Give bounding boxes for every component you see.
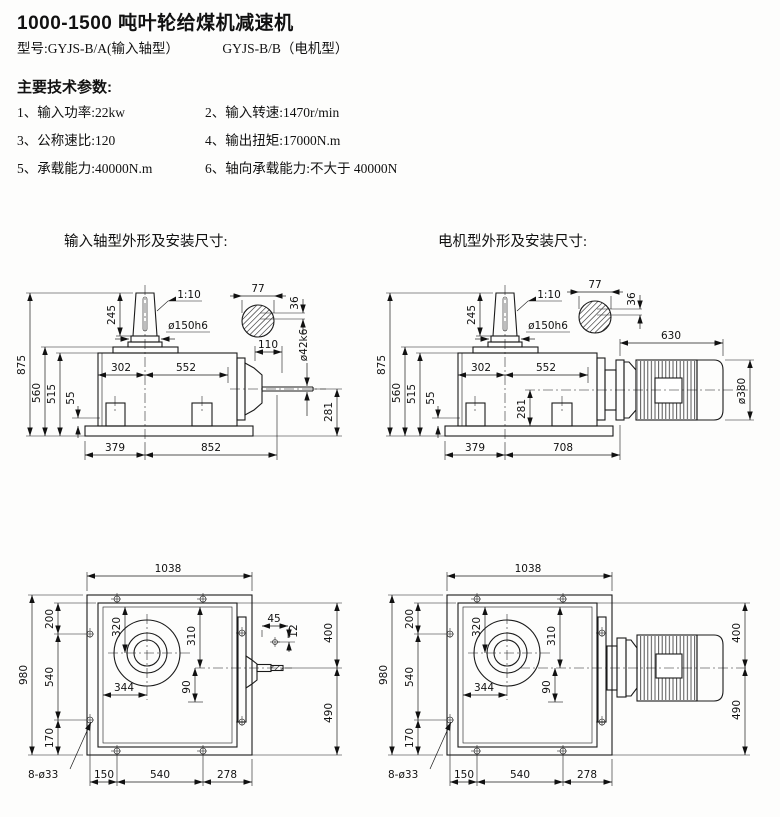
dim-1038: 1038 xyxy=(155,563,182,575)
dim-motor-dia: ø380 xyxy=(736,378,748,404)
dimensions: 1038 980 200 540 170 320 310 344 90 45 xyxy=(18,563,342,786)
dim-630: 630 xyxy=(661,330,681,342)
dim-200: 200 xyxy=(404,609,416,629)
dim-90: 90 xyxy=(541,680,553,693)
model-motor-type: GYJS-B/B（电机型） xyxy=(222,41,348,56)
dim-302: 302 xyxy=(471,362,491,374)
dim-36: 36 xyxy=(289,296,301,310)
dim-245: 245 xyxy=(466,305,478,325)
page-title: 1000-1500 吨叶轮给煤机减速机 xyxy=(17,8,294,35)
dim-344: 344 xyxy=(474,682,494,694)
dim-875: 875 xyxy=(376,355,388,375)
dim-302: 302 xyxy=(111,362,131,374)
dim-1038: 1038 xyxy=(515,563,542,575)
param-input-power: 1、输入功率:22kw xyxy=(17,101,205,121)
param-load-capacity: 5、承载能力:40000N.m xyxy=(17,157,205,177)
dim-281: 281 xyxy=(516,399,528,419)
motor-flange xyxy=(617,638,626,697)
dim-taper: 1:10 xyxy=(177,289,201,301)
dim-310: 310 xyxy=(186,626,198,646)
dim-490: 490 xyxy=(731,700,743,720)
foot xyxy=(192,403,212,426)
dim-holes: 8-ø33 xyxy=(28,769,58,781)
dim-200: 200 xyxy=(44,609,56,629)
dim-77: 77 xyxy=(251,283,264,295)
dim-90: 90 xyxy=(181,680,193,693)
dim-110: 110 xyxy=(258,339,278,351)
reducer-plan-outline xyxy=(447,595,723,755)
dim-560: 560 xyxy=(391,383,403,403)
catalog-page: 1000-1500 吨叶轮给煤机减速机 型号:GYJS-B/A(输入轴型） GY… xyxy=(0,0,780,817)
dim-170: 170 xyxy=(404,728,416,748)
param-output-torque: 4、输出扭矩:17000N.m xyxy=(205,129,397,149)
dim-245: 245 xyxy=(106,305,118,325)
dim-379: 379 xyxy=(105,442,125,454)
dim-310: 310 xyxy=(546,626,558,646)
param-input-speed: 2、输入转速:1470r/min xyxy=(205,101,397,121)
taper-flag-icon xyxy=(528,297,536,302)
drawing-top-input-shaft: 1038 980 200 540 170 320 310 344 90 45 xyxy=(10,550,355,812)
dim-515: 515 xyxy=(406,384,418,404)
param-ratio: 3、公称速比:120 xyxy=(17,129,205,149)
params-heading: 主要技术参数: xyxy=(17,76,112,97)
dim-400: 400 xyxy=(323,623,335,643)
dim-150: 150 xyxy=(94,769,114,781)
foot xyxy=(466,403,485,426)
dim-980: 980 xyxy=(18,665,30,685)
caption-input-shaft-view: 输入轴型外形及安装尺寸: xyxy=(64,230,228,251)
dim-320: 320 xyxy=(111,617,123,637)
dim-540-left: 540 xyxy=(404,667,416,687)
foot xyxy=(106,403,125,426)
motor-nameplate xyxy=(655,378,682,403)
dim-379: 379 xyxy=(465,442,485,454)
dim-45: 45 xyxy=(267,613,280,625)
drawing-side-motor: 875 560 515 55 245 1:10 ø150h6 302 xyxy=(370,263,780,487)
params-list: 1、输入功率:22kw 2、输入转速:1470r/min 3、公称速比:120 … xyxy=(17,101,397,177)
dim-320: 320 xyxy=(471,617,483,637)
mounting-holes xyxy=(444,593,608,757)
dim-540-left: 540 xyxy=(44,667,56,687)
foot xyxy=(552,403,572,426)
dim-278: 278 xyxy=(217,769,237,781)
model-input-shaft: 型号:GYJS-B/A(输入轴型） xyxy=(17,41,179,56)
dim-holes: 8-ø33 xyxy=(388,769,418,781)
dim-150: 150 xyxy=(454,769,474,781)
model-line: 型号:GYJS-B/A(输入轴型） GYJS-B/B（电机型） xyxy=(17,37,388,57)
dim-taper: 1:10 xyxy=(537,289,561,301)
dim-344: 344 xyxy=(114,682,134,694)
dim-560: 560 xyxy=(31,383,43,403)
dim-55: 55 xyxy=(65,391,77,404)
dim-875: 875 xyxy=(16,355,28,375)
dim-852: 852 xyxy=(201,442,221,454)
base-plate xyxy=(85,426,253,436)
base-plate xyxy=(445,426,613,436)
dim-540-bottom: 540 xyxy=(150,769,170,781)
dim-490: 490 xyxy=(323,703,335,723)
shaft-key-section xyxy=(242,305,274,337)
dim-552: 552 xyxy=(536,362,556,374)
dim-552: 552 xyxy=(176,362,196,374)
dim-cone-dia: ø150h6 xyxy=(168,320,208,332)
param-axial-load: 6、轴向承载能力:不大于 40000N xyxy=(205,157,397,177)
dim-cone-dia: ø150h6 xyxy=(528,320,568,332)
dim-278: 278 xyxy=(577,769,597,781)
dim-shaft-dia: ø42k6 xyxy=(298,328,310,361)
shaft-key-section xyxy=(579,301,611,333)
drawing-side-input-shaft: 875 560 515 55 245 1:10 ø150h6 302 xyxy=(10,263,370,487)
dim-77: 77 xyxy=(588,279,601,291)
caption-motor-view: 电机型外形及安装尺寸: xyxy=(438,230,587,251)
dim-540-bottom: 540 xyxy=(510,769,530,781)
centerlines xyxy=(468,614,748,700)
dim-55: 55 xyxy=(425,391,437,404)
dim-281: 281 xyxy=(323,402,335,422)
dim-515: 515 xyxy=(46,384,58,404)
dimensions: 875 560 515 55 245 1:10 ø150h6 302 xyxy=(16,283,342,460)
dim-12: 12 xyxy=(288,624,300,637)
dim-170: 170 xyxy=(44,728,56,748)
dim-708: 708 xyxy=(553,442,573,454)
taper-flag-icon xyxy=(168,297,176,302)
motor-nameplate xyxy=(656,654,682,678)
dim-36: 36 xyxy=(626,292,638,306)
dim-400: 400 xyxy=(731,623,743,643)
drawing-top-motor: 1038 980 200 540 170 320 310 344 90 400 xyxy=(370,550,780,812)
dim-980: 980 xyxy=(378,665,390,685)
